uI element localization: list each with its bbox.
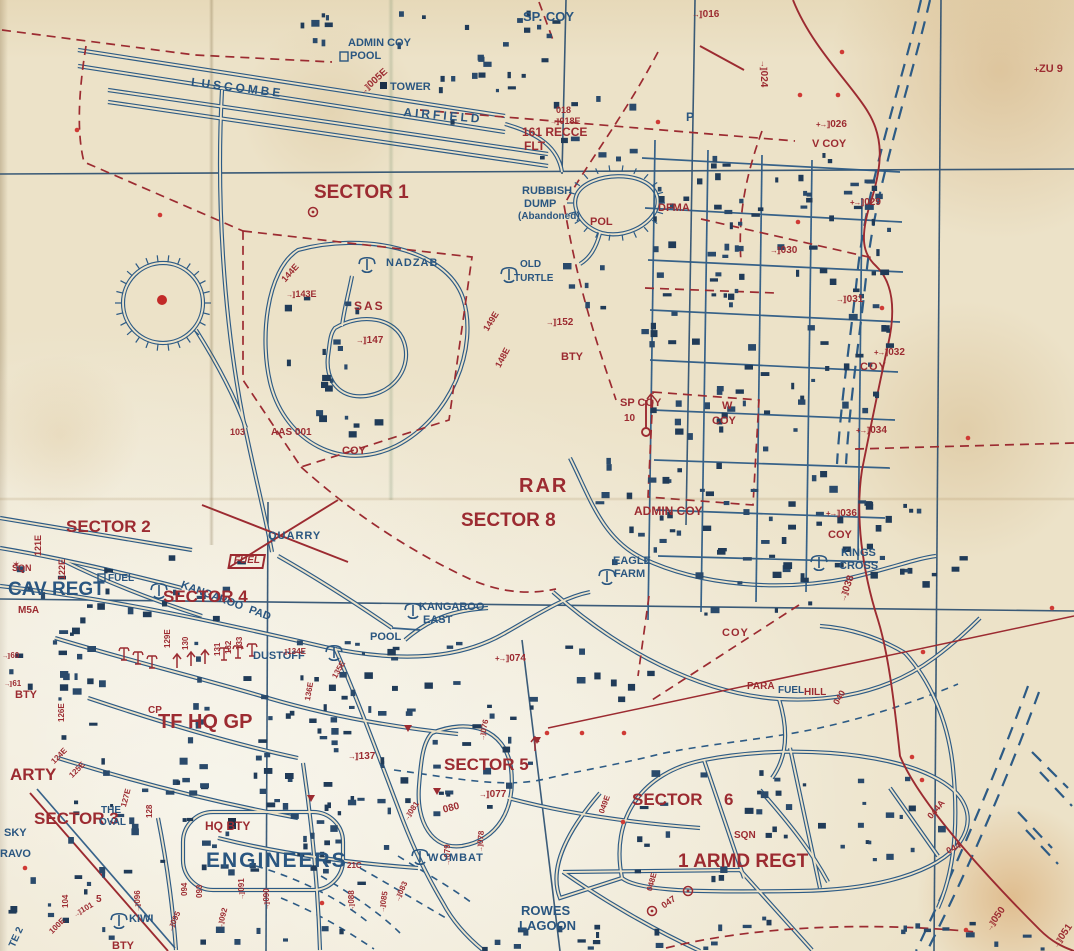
map-label: COY [860,362,887,373]
red-dot-marker [836,93,841,98]
helipad-icon [599,570,615,585]
map-label: BTY [561,352,583,363]
map-label: (Abandoned) [518,212,580,222]
map-label: OLD [520,260,541,270]
marker-arrow-icon: →⟧ [2,653,9,660]
map-label: 103 [230,428,245,437]
map-label: 093 [196,885,204,898]
red-dot-marker [320,901,325,906]
marker-arrow-icon: →⟧ [348,752,358,761]
map-label: 122E [58,559,67,580]
marker-arrow-icon: +→⟧ [495,654,508,663]
arrow-up-icon [187,652,195,666]
map-label: 104 [62,895,70,908]
map-label: SKY [4,828,27,839]
map-label: SAS [354,300,385,312]
map-label: DFMA [658,203,690,214]
map-label: TURTLE [514,274,553,284]
map-label: RUBBISH [522,186,572,197]
map-label: 018 [556,106,571,115]
map-label: EAST [423,615,452,626]
red-dot-marker [966,436,971,441]
marker-arrow-icon: →⟧ [264,903,271,910]
red-dot-marker [622,731,627,736]
map-label: BTY [15,690,37,701]
map-label: CAV REGT [8,580,105,599]
map-label: →⟧088 [348,890,356,912]
paper-fold-horizontal [0,497,1074,501]
marker-arrow-icon: →⟧ [479,790,489,799]
map-label: →⟧137 [348,752,375,762]
map-label: →⟧147 [356,336,383,346]
red-dot-marker [158,213,163,218]
map-label: KIWI [129,914,153,925]
marker-arrow-icon: →⟧ [759,60,768,70]
map-label: +→⟧029 [850,198,881,208]
map-label: 21C [347,862,362,870]
map-label: 161 RECCE [522,126,587,138]
red-dot-marker [920,778,925,783]
map-label: ROWES [521,904,570,917]
map-label: WOMBAT [428,853,484,864]
map-label: →⟧024 [758,60,768,87]
map-label: HQ BTY [205,820,250,832]
marker-arrow-icon: →⟧ [135,905,142,912]
base-map: ✶ ADMIN COYPOOL→⟧005ETOWERLUSCOMBEAIRFIE… [0,0,1074,951]
map-label: SECTOR 2 [66,518,151,535]
map-label: RAR [519,476,568,496]
map-label: +→⟧032 [874,348,905,358]
map-label: COY [722,628,749,639]
map-label: SQN [12,564,32,573]
red-dot-marker [964,928,969,933]
map-label: 126E [58,703,66,722]
map-label: 133 [236,637,244,650]
map-label: POOL [370,632,401,643]
map-label: →⟧134E [279,648,306,656]
tower-icon [380,82,387,89]
marker-arrow-icon: +→⟧ [826,509,839,518]
map-label: TOWER [390,82,431,93]
map-label: →⟧016 [692,10,719,20]
map-label: ENGINEERS [206,850,348,871]
map-label: →⟧077 [479,790,506,800]
map-label: PARA [747,682,775,692]
map-label: BTY [112,941,134,951]
marker-arrow-icon: →⟧ [379,905,387,913]
red-dot-marker [621,820,626,825]
map-label: →⟧031 [836,295,863,305]
red-dot-marker [656,120,661,125]
map-label: ADMIN COY [348,38,411,49]
map-label: 1 ARMD REGT [678,852,808,871]
marker-arrow-icon: +→⟧ [850,198,863,207]
map-label: →⟧152 [546,318,573,328]
pool-icon [340,52,348,61]
map-label: P [686,111,694,123]
map-label: SP. COY [523,10,574,23]
map-label: FUEL [108,574,134,584]
marker-arrow-icon: →⟧ [836,295,846,304]
map-label: →⟧091 [238,878,246,900]
helipad-icon [111,914,127,929]
map-label: +→⟧074 [495,654,526,664]
map-label: 128 [146,805,154,818]
map-label: POL [590,217,613,228]
map-label: FARM [614,569,645,580]
marker-arrow-icon: +→⟧ [874,348,887,357]
map-label: COY [342,446,366,457]
map-label: DUMP [524,199,556,210]
map-label: AAS 001 [271,428,312,438]
map-label: CROSS [839,561,878,572]
map-label: RAVO [0,849,31,860]
red-dot-marker [580,731,585,736]
red-dot-marker [880,306,885,311]
red-point-marker [157,295,167,305]
map-label: HILL [804,688,826,698]
map-label: +ZU 9 [1034,64,1063,75]
helipad-icon [811,556,827,571]
marker-arrow-icon: →⟧ [692,10,702,19]
marker-arrow-icon: →⟧ [349,905,356,912]
red-dot-marker [545,731,550,736]
marker-arrow-icon: +→⟧ [856,426,869,435]
map-label: 5 [96,895,102,905]
marker-arrow-icon: +→⟧ [816,120,829,129]
map-label: LAGOON [519,919,576,932]
helipad-icon [359,258,375,273]
map-label: V COY [812,139,846,150]
red-dot-marker [796,220,801,225]
map-label: W [722,401,732,412]
map-label: +→⟧026 [816,120,847,130]
marker-arrow-icon: →⟧ [770,246,780,255]
map-label: SQN [734,831,756,841]
map-label: SECTOR 8 [461,511,556,530]
map-label: SP COY [620,398,661,409]
map-label: NADZAB [386,258,438,269]
map-label: TF HQ GP [158,712,252,732]
map-label: 121E [34,535,43,556]
red-dot-marker [910,755,915,760]
map-label: OVAL [99,818,126,828]
marker-arrow-icon: + [1034,64,1038,74]
map-label: QUARRY [268,531,321,542]
map-label: +→⟧034 [856,426,887,436]
red-dot-marker [23,866,28,871]
marker-arrow-icon: →⟧ [4,681,11,688]
map-label: 6 [724,791,733,808]
map-label: 10 [624,414,635,424]
map-label: 129E [164,629,172,648]
map-label: SECTOR 1 [314,183,409,202]
map-label: →⟧090 [263,888,271,910]
marker-arrow-icon: →⟧ [546,318,556,327]
map-label: FLT [524,140,545,152]
marker-arrow-icon: →⟧ [356,336,366,345]
map-label: ADMIN COY [634,505,703,517]
arrow-up-icon [201,650,209,664]
map-label: 130 [182,637,190,650]
map-label: →⟧60 [2,652,19,660]
red-dot-marker [75,128,80,133]
arrow-up-icon [173,654,181,668]
marker-arrow-icon: →⟧ [286,292,295,299]
map-label: →⟧61 [4,680,21,688]
marker-arrow-icon: →⟧ [479,733,487,742]
map-label: +→⟧036 [826,509,857,519]
map-label: KINGS [841,548,876,559]
red-dot-marker [921,650,926,655]
marker-arrow-icon: →⟧ [239,893,246,900]
map-label: COY [828,530,852,541]
map-label: SECTOR [632,791,703,808]
red-dot-marker [1050,606,1055,611]
map-label: ARTY [10,766,56,783]
map-label: POOL [350,51,381,62]
map-label: KANGAROO [419,602,484,613]
map-label: 132 [225,641,233,654]
map-label: 094 [181,883,189,896]
map-label: EAGLE [613,556,651,567]
red-dot-marker [840,50,845,55]
map-label: →⟧030 [770,246,797,256]
map-label: FUEL [778,686,804,696]
map-label: SECTOR 4 [163,588,248,605]
marker-arrow-icon: →⟧ [279,649,286,656]
map-label: →⟧143E [286,290,317,299]
red-dot-marker [798,93,803,98]
map-label: SECTOR 5 [444,756,529,773]
map-label: 131 [214,643,222,656]
map-label: →⟧096 [134,890,142,912]
map-label: M5A [18,606,39,616]
map-label: FUEL [227,554,266,569]
map-label: COY [712,416,736,427]
map-label: THE [101,806,121,816]
marker-arrow-icon: →⟧ [217,921,226,930]
